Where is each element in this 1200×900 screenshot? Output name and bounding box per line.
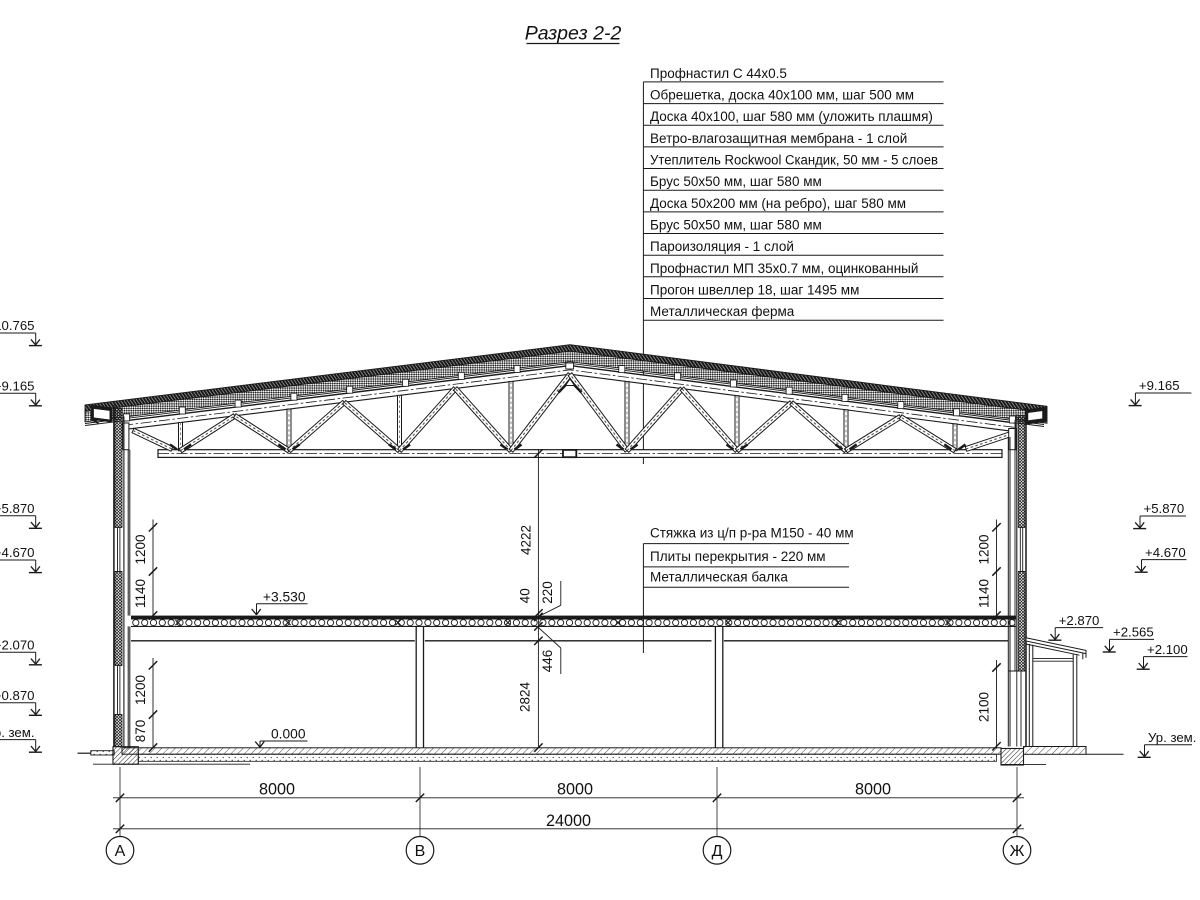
svg-text:Брус 50х50 мм, шаг 580 мм: Брус 50х50 мм, шаг 580 мм xyxy=(650,174,822,189)
svg-text:8000: 8000 xyxy=(557,780,593,798)
svg-text:+5.870: +5.870 xyxy=(1144,501,1185,516)
svg-text:Обрешетка, доска 40х100 мм, ша: Обрешетка, доска 40х100 мм, шаг 500 мм xyxy=(650,88,914,103)
svg-text:24000: 24000 xyxy=(546,812,591,830)
svg-text:Профнастил МП 35х0.7 мм, оцинк: Профнастил МП 35х0.7 мм, оцинкованный xyxy=(650,261,918,276)
svg-text:+0.870: +0.870 xyxy=(0,688,35,703)
svg-text:446: 446 xyxy=(540,650,555,673)
svg-text:+4.670: +4.670 xyxy=(1145,545,1186,560)
svg-text:+9.165: +9.165 xyxy=(0,378,35,393)
svg-text:870: 870 xyxy=(133,720,148,743)
svg-text:Брус 50х50 мм, шаг 580 мм: Брус 50х50 мм, шаг 580 мм xyxy=(650,218,822,233)
svg-text:Ур. зем.: Ур. зем. xyxy=(0,725,35,740)
svg-text:+3.530: +3.530 xyxy=(263,589,306,604)
svg-text:+2.870: +2.870 xyxy=(1059,613,1100,628)
svg-text:Прогон швеллер 18, шаг 1495 мм: Прогон швеллер 18, шаг 1495 мм xyxy=(650,283,859,298)
svg-text:Профнастил С 44х0.5: Профнастил С 44х0.5 xyxy=(650,66,787,81)
svg-text:1140: 1140 xyxy=(976,579,991,608)
svg-text:4222: 4222 xyxy=(519,525,534,555)
svg-text:Утеплитель Rockwool Скандик, 5: Утеплитель Rockwool Скандик, 50 мм - 5 с… xyxy=(650,153,938,168)
svg-text:Разрез 2-2: Разрез 2-2 xyxy=(525,23,622,45)
svg-text:1140: 1140 xyxy=(133,579,148,608)
svg-text:+2.100: +2.100 xyxy=(1147,642,1188,657)
svg-text:Ветро-влагозащитная мембрана -: Ветро-влагозащитная мембрана - 1 слой xyxy=(650,131,907,146)
svg-text:0.000: 0.000 xyxy=(271,726,306,741)
svg-text:220: 220 xyxy=(540,581,555,604)
svg-text:Плиты перекрытия - 220 мм: Плиты перекрытия - 220 мм xyxy=(650,549,826,564)
svg-text:Металлическая ферма: Металлическая ферма xyxy=(650,304,795,319)
svg-text:+5.870: +5.870 xyxy=(0,501,35,516)
svg-text:Металлическая балка: Металлическая балка xyxy=(650,569,788,584)
svg-text:+4.670: +4.670 xyxy=(0,545,35,560)
svg-text:Стяжка из ц/п р-ра М150 - 40 м: Стяжка из ц/п р-ра М150 - 40 мм xyxy=(650,526,854,541)
svg-text:В: В xyxy=(415,843,426,860)
svg-text:Пароизоляция - 1 слой: Пароизоляция - 1 слой xyxy=(650,239,794,254)
svg-text:1200: 1200 xyxy=(133,534,148,564)
svg-text:+9.165: +9.165 xyxy=(1139,378,1180,393)
svg-text:Ур. зем.: Ур. зем. xyxy=(1148,730,1196,745)
svg-text:Ж: Ж xyxy=(1010,843,1025,860)
svg-text:8000: 8000 xyxy=(259,780,295,798)
svg-text:+2.070: +2.070 xyxy=(0,637,35,652)
svg-text:+2.565: +2.565 xyxy=(1113,625,1154,640)
svg-text:1200: 1200 xyxy=(976,534,991,564)
svg-text:Д: Д xyxy=(712,843,723,860)
svg-text:Доска 50х200 мм (на ребро), ша: Доска 50х200 мм (на ребро), шаг 580 мм xyxy=(650,196,906,211)
svg-text:1200: 1200 xyxy=(133,675,148,705)
svg-text:40: 40 xyxy=(518,588,533,603)
svg-text:+10.765: +10.765 xyxy=(0,318,35,333)
svg-text:8000: 8000 xyxy=(855,780,891,798)
svg-text:2824: 2824 xyxy=(518,681,533,712)
svg-text:2100: 2100 xyxy=(976,692,991,722)
svg-text:А: А xyxy=(115,843,126,860)
svg-text:Доска 40х100, шаг 580 мм (улож: Доска 40х100, шаг 580 мм (уложить плашмя… xyxy=(650,109,933,124)
